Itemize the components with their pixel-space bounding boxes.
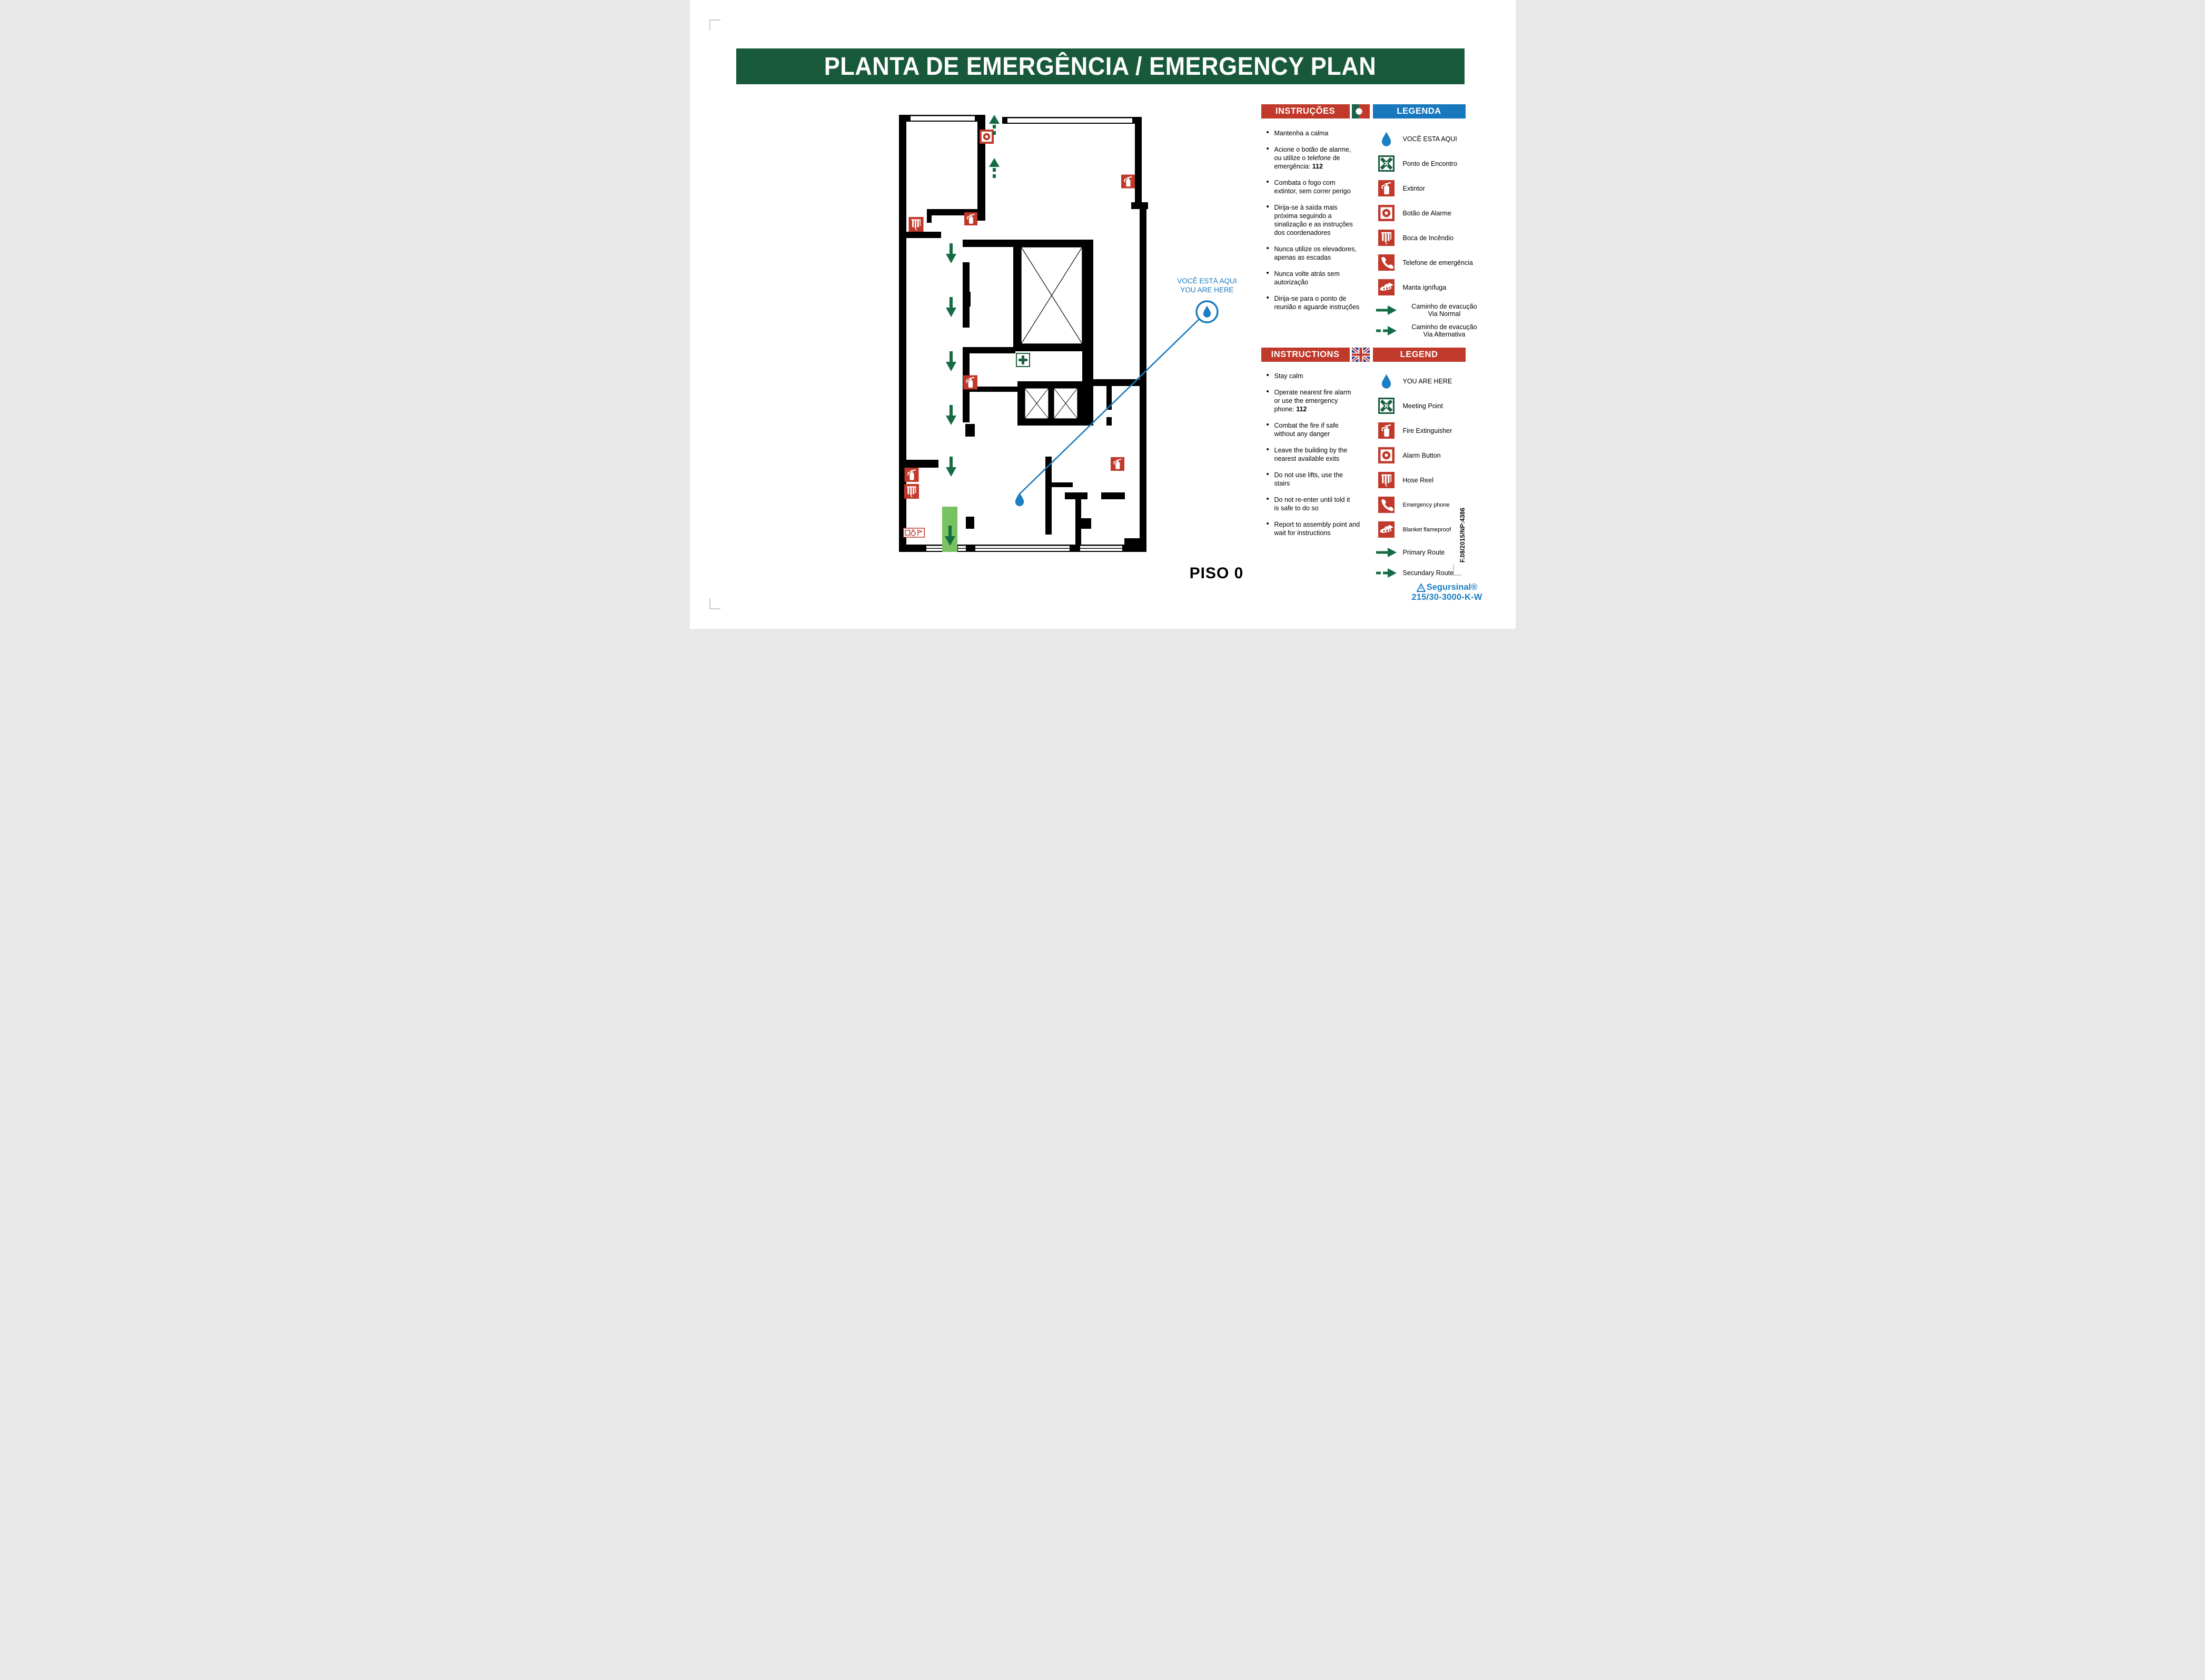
legend-row: Emergency phone [1375,492,1516,517]
ext-icon [1121,175,1135,189]
legend-row: Telefone de emergência [1375,250,1516,275]
instruction-item: Dirija-se à saìda maispróxima seguindo a… [1274,203,1379,237]
legend-row: Boca de Incêndio [1375,225,1516,250]
instruction-item: Mantenha a calma [1274,129,1379,137]
you-are-here-label: VOCÊ ESTÁ AQUI YOU ARE HERE [1153,276,1261,294]
legend-row: Fire Extinguisher [1375,418,1516,443]
ext-icon [1111,457,1124,471]
instruction-item: Dirija-se para o ponto dereunião e aguar… [1274,294,1379,311]
legend-label: Primary Route [1403,549,1445,556]
legend-label: Fire Extinguisher [1403,427,1452,434]
instructions-pt-list: Mantenha a calmaAcione o botão de alarme… [1266,129,1379,319]
brand-logo-icon [1417,584,1426,592]
instructions-pt-title: INSTRUÇÕES [1275,106,1335,116]
instructions-en-list: Stay calmOperate nearest fire alarmor us… [1266,372,1379,545]
floor-plan-walls [899,115,1148,552]
arrow-dash-icon [1375,325,1399,336]
route-arrow [946,457,956,477]
instruction-item: Acione o botão de alarme,ou utilize o te… [1274,145,1379,171]
ext-icon [964,212,977,225]
hose-icon [1375,230,1399,246]
legend-label: Telefone de emergência [1403,259,1473,266]
legend-row: Caminho de evacuçãoVia Alternativa [1375,320,1516,341]
you-are-here-label-en: YOU ARE HERE [1153,285,1261,294]
legend-label: Secundary Route [1403,569,1454,577]
emergency-plan-poster: PLANTA DE EMERGÊNCIA / EMERGENCY PLAN IN… [690,0,1516,629]
legend-row: Hose Reel [1375,468,1516,492]
legend-label: Boca de Incêndio [1403,234,1454,242]
uk-flag-icon [1352,348,1370,362]
instructions-pt-header: INSTRUÇÕES [1261,104,1350,118]
hose-icon [908,217,923,232]
meeting-icon [1375,398,1399,414]
blanket-icon [1375,521,1399,538]
legend-row: Meeting Point [1375,393,1516,418]
legend-label: Ponto de Encontro [1403,160,1458,167]
hose-icon [904,484,919,499]
route-arrow [946,243,956,263]
legend-label: Alarm Button [1403,452,1441,459]
legend-label: Botão de Alarme [1403,210,1451,217]
legend-row: VOCÊ ESTA AQUI [1375,126,1516,151]
firstaid-icon [1016,353,1030,367]
arrow-dash-icon [1375,568,1399,578]
legend-row: Secundary Route [1375,562,1516,583]
legend-pt-header: LEGENDA [1373,104,1466,118]
instructions-en-header: INSTRUCTIONS [1261,348,1350,362]
meeting-icon [1375,155,1399,172]
alarm-icon [980,130,994,144]
arrow-solid-icon [1375,547,1399,558]
route-arrow [989,158,1000,178]
route-arrow [946,405,956,425]
legend-row: Botão de Alarme [1375,201,1516,225]
legend-row: Manta ignífuga [1375,275,1516,300]
legend-row: Ponto de Encontro [1375,151,1516,176]
you-are-here-plan-drop [1015,492,1024,506]
instruction-item: Do not re-enter until told itis safe to … [1274,496,1379,512]
document-reference: F.08/2015/NP:4386 [1460,473,1466,562]
drop-icon [1375,373,1399,389]
phone-icon [1375,254,1399,271]
legend-row: YOU ARE HERE [1375,369,1516,393]
legend-label: Caminho de evacuçãoVia Alternativa [1400,323,1489,338]
legend-label: Manta ignífuga [1403,284,1447,291]
route-arrow [946,297,956,317]
alarm-icon [1375,447,1399,463]
legend-label: Extintor [1403,185,1425,192]
route-arrow [946,351,956,371]
legend-row: Alarm Button [1375,443,1516,468]
instruction-item: Nunca utilize os elevadores,apenas as es… [1274,245,1379,262]
instruction-item: Report to assembly point andwait for ins… [1274,520,1379,537]
legend-en-list: YOU ARE HEREMeeting PointFire Extinguish… [1375,369,1516,583]
floor-label: PISO 0 [1179,565,1255,582]
legend-row: Primary Route [1375,542,1516,562]
instruction-item: Do not use lifts, use thestairs [1274,471,1379,488]
legend-pt-list: VOCÊ ESTA AQUIPonto de EncontroExtintorB… [1375,126,1516,341]
title-banner: PLANTA DE EMERGÊNCIA / EMERGENCY PLAN [736,48,1465,84]
legend-row: Blanket flameproof [1375,517,1516,542]
alarm-icon [1375,205,1399,221]
legend-label: YOU ARE HERE [1403,378,1452,385]
legend-en-title: LEGEND [1400,350,1438,360]
legend-label: Hose Reel [1403,477,1433,484]
legend-label: Meeting Point [1403,402,1443,410]
drop-icon [1375,131,1399,147]
instruction-item: Combat the fire if safewithout any dange… [1274,421,1379,438]
legend-label: Emergency phone [1403,501,1450,509]
brand-name: Segursinal® [1427,582,1478,592]
legend-label: Blanket flameproof [1403,526,1451,533]
instructions-en-title: INSTRUCTIONS [1271,350,1340,360]
blanket-icon [1375,279,1399,295]
instruction-item: Stay calm [1274,372,1379,380]
legend-pt-title: LEGENDA [1397,106,1441,116]
ext-icon [963,375,977,390]
ext-icon [904,468,918,482]
hose-icon [1375,472,1399,488]
legend-row: Caminho de evacuçãoVia Normal [1375,300,1516,320]
portugal-flag-icon [1352,104,1370,118]
brand-model: 215/30-3000-K-W [1410,592,1484,602]
instruction-item: Nunca volte atrás semautorização [1274,270,1379,286]
phone-icon [1375,497,1399,513]
arrow-solid-icon [1375,305,1399,315]
instruction-item: Leave the building by thenearest availab… [1274,446,1379,463]
legend-en-header: LEGEND [1373,348,1466,362]
you-are-here-label-pt: VOCÊ ESTÁ AQUI [1153,276,1261,285]
brand-block: Segursinal® 215/30-3000-K-W [1410,582,1484,602]
legend-label: Caminho de evacuçãoVia Normal [1400,303,1489,318]
ext-icon [1375,180,1399,196]
legend-row: Extintor [1375,176,1516,201]
instruction-item: Combata o fogo comextintor, sem correr p… [1274,179,1379,195]
lift-shaft [1021,247,1082,344]
exitgroup-icon [903,528,924,537]
ext-icon [1375,422,1399,439]
instruction-item: Operate nearest fire alarmor use the eme… [1274,388,1379,413]
legend-label: VOCÊ ESTA AQUI [1403,135,1457,143]
page-title: PLANTA DE EMERGÊNCIA / EMERGENCY PLAN [824,52,1377,81]
